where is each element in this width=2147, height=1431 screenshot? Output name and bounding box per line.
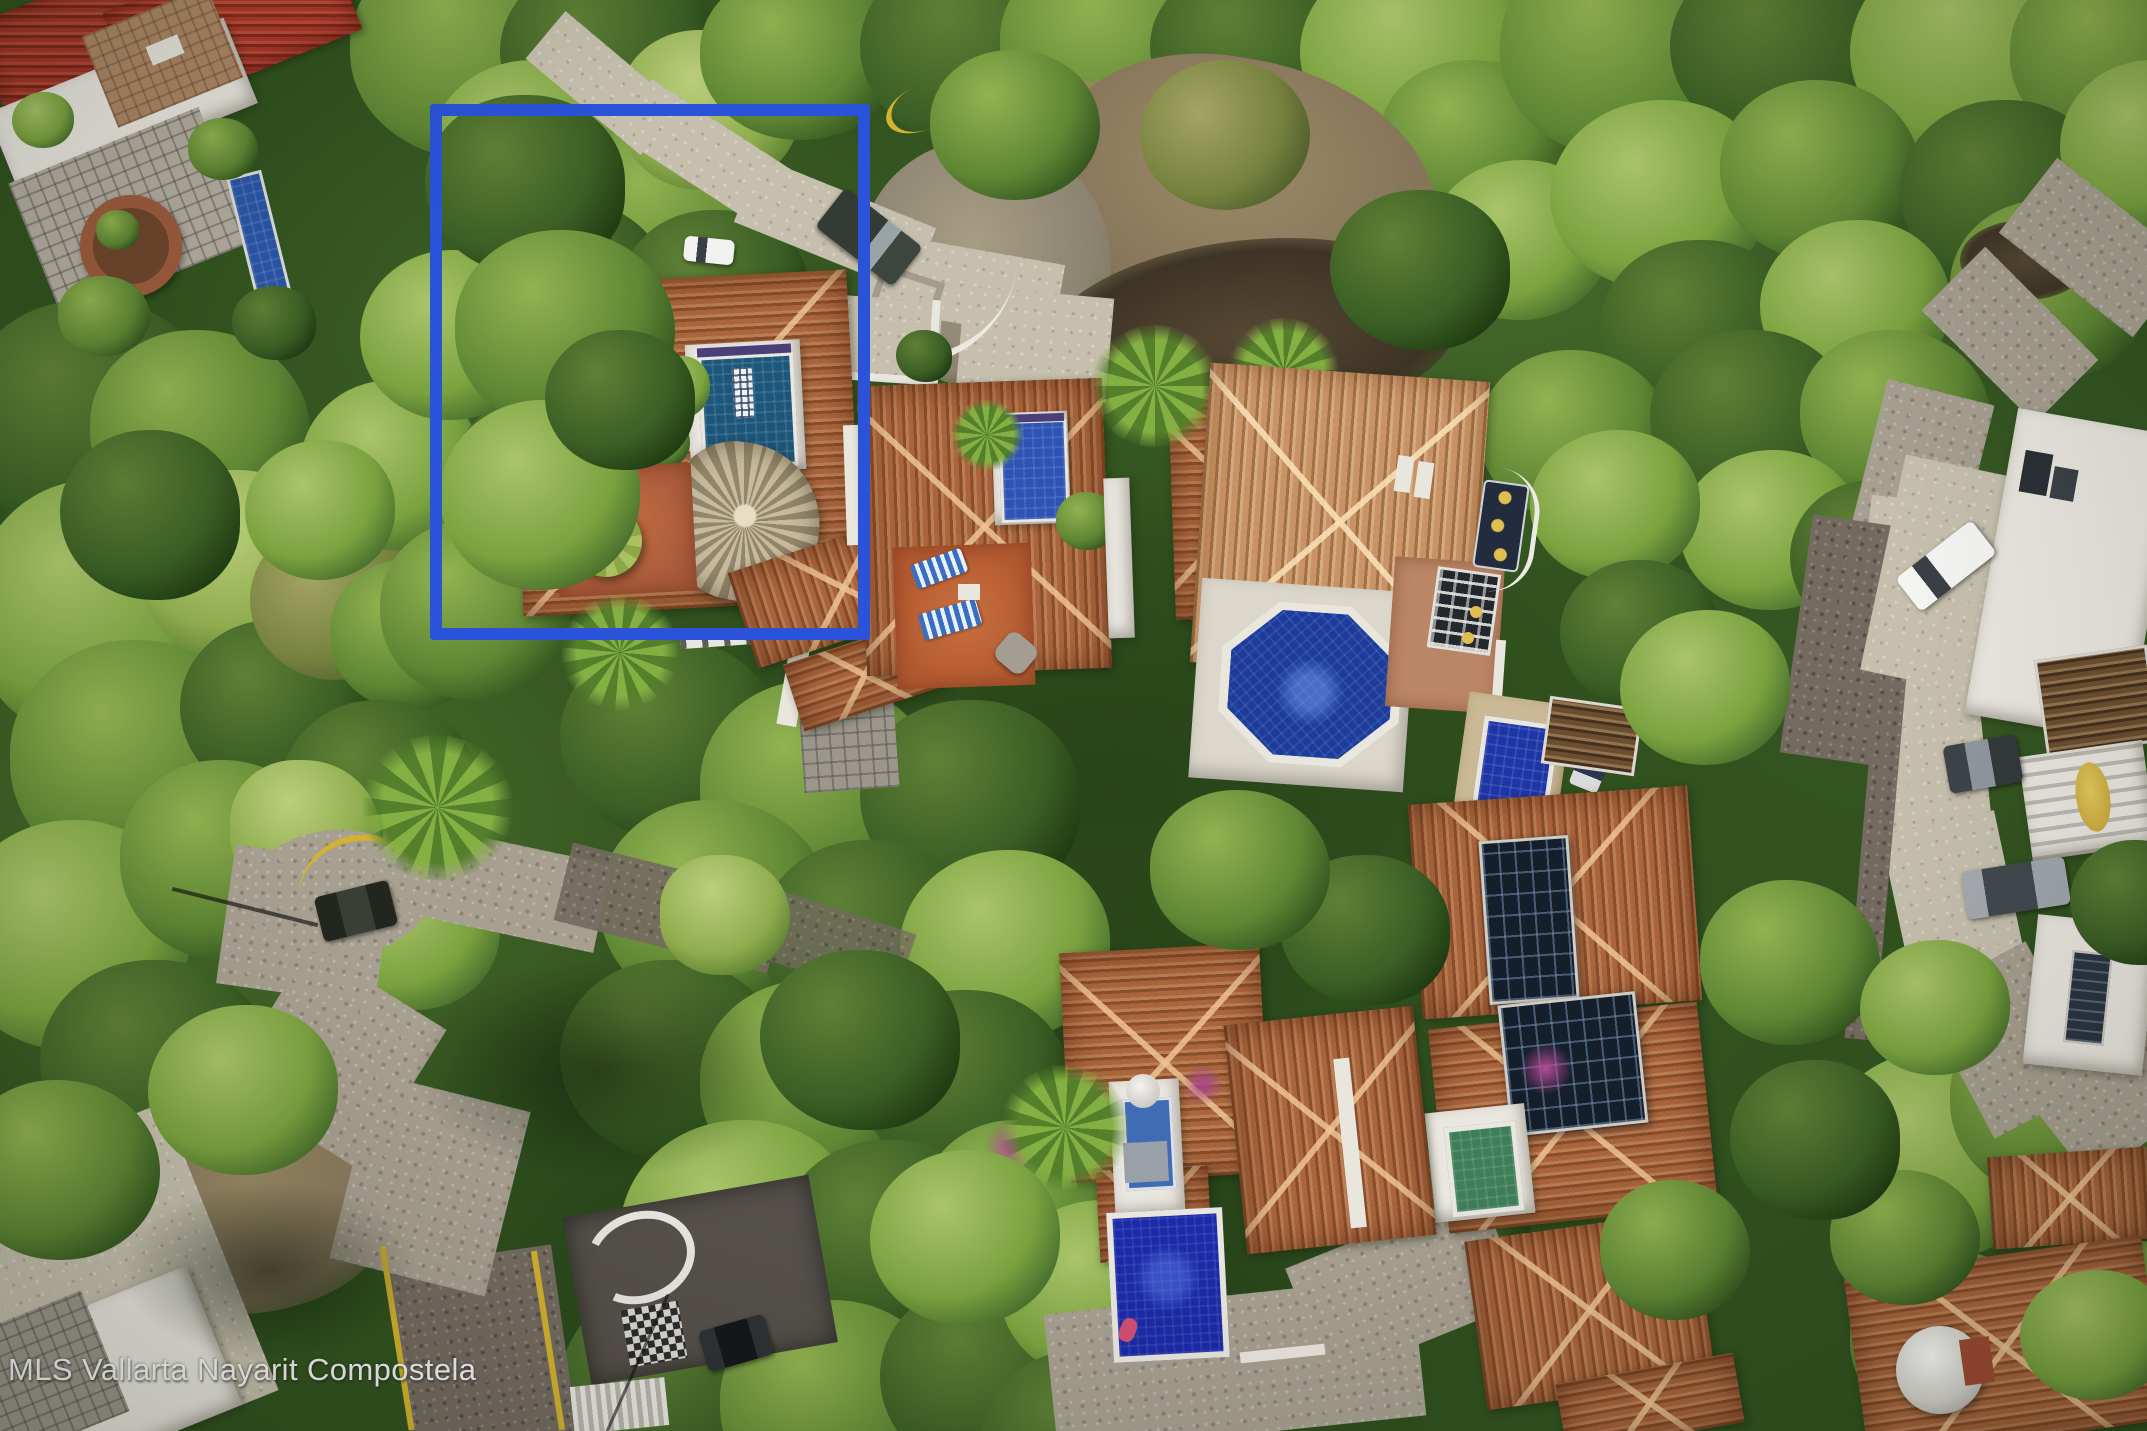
bush	[896, 330, 952, 382]
patio-table	[958, 584, 980, 600]
tree	[1330, 190, 1510, 350]
terrace-plant	[12, 92, 74, 148]
planter-shrub	[96, 210, 140, 250]
tree	[1150, 790, 1330, 950]
tree	[1730, 1060, 1900, 1220]
brick-chimney	[1959, 1336, 1995, 1386]
yellow-chair	[1470, 606, 1482, 618]
terrace-plant	[232, 286, 316, 360]
tree	[1860, 940, 2010, 1075]
tree	[1600, 1180, 1750, 1320]
bougainvillea	[1518, 1044, 1574, 1094]
solar-panel-array	[1478, 835, 1579, 1005]
tree-shadow	[410, 960, 790, 1180]
aerial-photo: MLS Vallarta Nayarit Compostela	[0, 0, 2147, 1431]
villa-e-roof	[1223, 1006, 1436, 1255]
bougainvillea	[1182, 1066, 1224, 1104]
terrace-plant	[188, 118, 258, 180]
checkered-patio	[620, 1300, 687, 1367]
spa-cover	[1123, 1141, 1169, 1183]
tree	[1700, 880, 1880, 1045]
white-walkway	[1103, 478, 1135, 639]
highlight-box	[430, 104, 870, 640]
yellow-chair	[1462, 632, 1474, 644]
dome-vent	[1126, 1074, 1160, 1108]
tree-shadow	[120, 1180, 420, 1360]
palm-tree	[1090, 325, 1220, 447]
tree	[870, 1150, 1060, 1325]
tree	[60, 430, 240, 600]
tree	[1620, 610, 1790, 765]
tree	[148, 1005, 338, 1175]
tree	[1530, 430, 1700, 580]
terrace-plant	[58, 276, 150, 356]
tree	[245, 440, 395, 580]
tree	[760, 950, 960, 1130]
tree	[930, 50, 1100, 200]
tree	[1140, 60, 1310, 210]
green-plunge-pool	[1443, 1120, 1524, 1217]
watermark-text: MLS Vallarta Nayarit Compostela	[8, 1352, 476, 1388]
terracotta-roof	[1987, 1147, 2147, 1250]
tree	[660, 855, 790, 975]
